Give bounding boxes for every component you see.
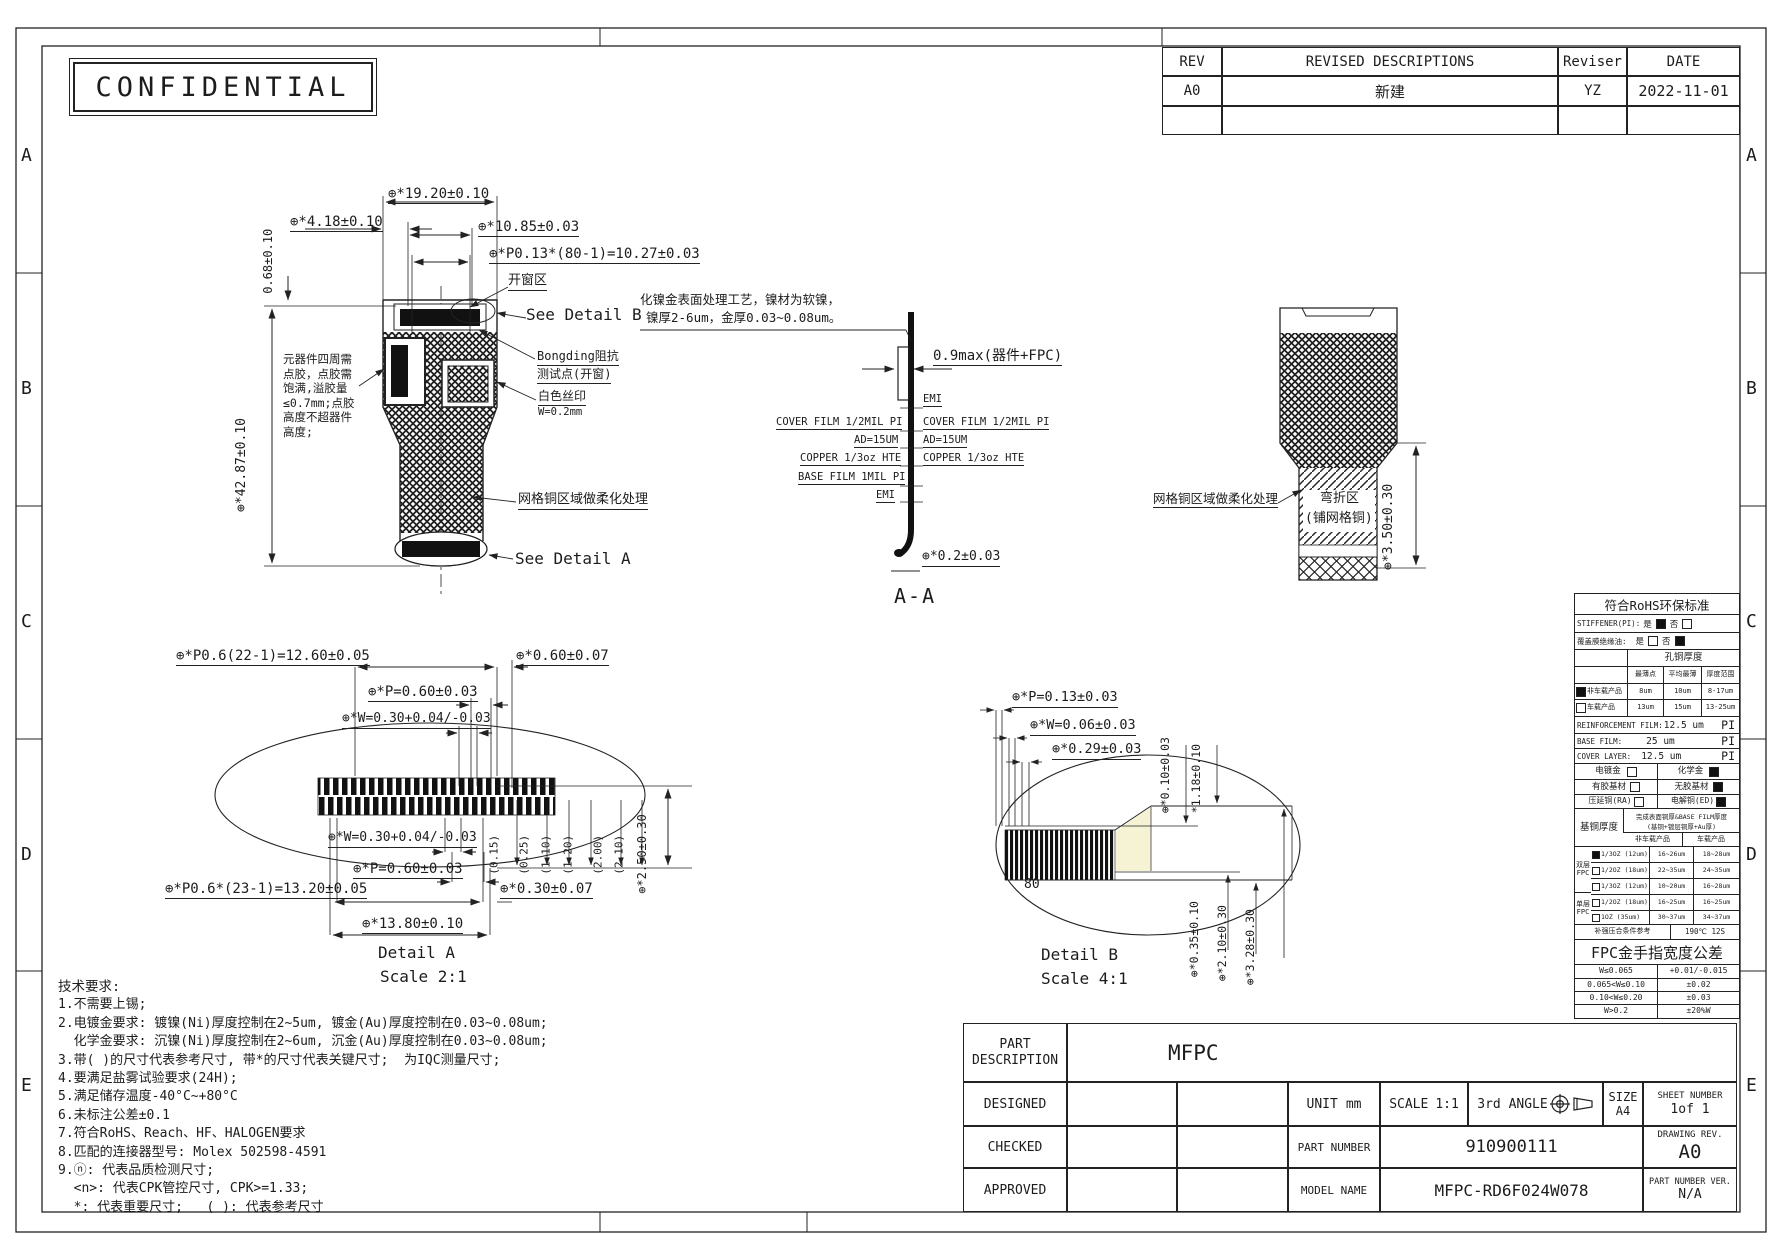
rev-header-rev: REV: [1162, 47, 1222, 76]
glue-note: 元器件四周需 点胶，点胶需 饱满,溢胶量 ≤0.7mm;点胶 高度不超器件 高度…: [283, 352, 354, 440]
emi-layer-bottom: EMI: [876, 489, 895, 503]
dim-pitch-span-23: ⊕*P0.6*(23-1)=13.20±0.05: [165, 881, 367, 899]
checked-date: [1177, 1126, 1288, 1168]
spec-press-row: 补强压合条件参考 190℃ 12S: [1575, 924, 1739, 939]
dim-3-28: ⊕*3.28±0.30: [1244, 909, 1257, 985]
spec-rohs-header: 符合RoHS环保标准: [1575, 594, 1739, 614]
mesh-copper-note: 网格铜区域做柔化处理: [518, 493, 648, 510]
spec-hole-row-non-auto: 非车载产品 8um 10um 8-17um: [1575, 683, 1739, 699]
dim-4-18: ⊕*4.18±0.10: [290, 214, 383, 232]
grid-row-e-left: E: [21, 1075, 32, 1096]
dim-bend-3-50: ⊕*3.50±0.30: [1382, 484, 1397, 570]
checked-value: [1067, 1126, 1177, 1168]
dim-0-60-gap: ⊕*0.60±0.07: [516, 648, 609, 666]
part-number-label: PART NUMBER: [1288, 1126, 1380, 1168]
grid-row-c-right: C: [1746, 611, 1757, 632]
dim-0-10: ⊕*0.10±0.03: [1159, 737, 1172, 813]
notes-title: 技术要求:: [58, 978, 548, 996]
grid-row-a-right: A: [1746, 145, 1757, 166]
part-number-ver-cell: PART NUMBER VER. N/A: [1643, 1168, 1737, 1212]
spec-hole-copper-header: 孔铜厚度: [1575, 649, 1739, 666]
dim-2-50: ⊕*2.50±0.30: [636, 814, 650, 893]
rev-empty-3: [1558, 106, 1627, 135]
projection-cell: 3rd ANGLE: [1468, 1082, 1603, 1126]
dim-0-35: ⊕*0.35±0.10: [1188, 901, 1201, 977]
see-detail-a-label: See Detail A: [515, 550, 631, 568]
ref-dim-2-00: (2.00): [592, 835, 605, 875]
note-line: 9.ⓝ: 代表品质检测尺寸;: [58, 1162, 548, 1180]
spec-hole-cols: 最薄点 平均最薄 厚度范围: [1575, 666, 1739, 683]
designed-date: [1177, 1082, 1288, 1126]
third-angle-projection-icon: [1550, 1093, 1594, 1115]
spec-finger-row-1: W≤0.065 +0.01/-0.015: [1575, 964, 1739, 978]
spec-base-film-row: BASE FILM: 25 um PI: [1575, 733, 1739, 748]
scale-cell: SCALE1:1: [1380, 1082, 1468, 1126]
confidential-stamp: CONFIDENTIAL: [73, 62, 373, 112]
note-line: 7.符合RoHS、Reach、HF、HALOGEN要求: [58, 1125, 548, 1143]
engineering-drawing-page: CONFIDENTIAL A B C D E A B C D E REV REV…: [0, 0, 1778, 1244]
spec-hole-row-auto: 车载产品 13um 15um 13-25um: [1575, 699, 1739, 716]
rev-row-desc: 新建: [1222, 76, 1558, 106]
detail-b-scale: Scale 4:1: [1041, 970, 1128, 988]
adhesive-right: AD=15UM: [923, 434, 967, 448]
technical-notes: 技术要求: 1.不需要上锡; 2.电镀金要求: 镀镍(Ni)厚度控制在2~5um…: [58, 978, 548, 1217]
spec-copper-type-row: 压延铜(RA) 电解铜(ED): [1575, 794, 1739, 808]
note-line: 5.满足储存温度-40°C~+80°C: [58, 1088, 548, 1106]
adhesive-right-checkbox: [1713, 782, 1723, 792]
copper-opt-4-checkbox: [1592, 899, 1600, 907]
rev-row-reviser: YZ: [1558, 76, 1627, 106]
ref-dim-1-10: (1.10): [540, 835, 553, 875]
copper-opt-3-checkbox: [1592, 883, 1600, 891]
bend-zone-label-2: (铺网格铜): [1303, 512, 1375, 527]
model-name-label: MODEL NAME: [1288, 1168, 1380, 1212]
adhesive-left-checkbox: [1630, 782, 1640, 792]
auto-checkbox: [1576, 703, 1586, 713]
copper-layer-right: COPPER 1/3oz HTE: [923, 452, 1024, 466]
non-auto-checkbox: [1576, 687, 1586, 697]
spec-finger-row-3: 0.10<W≤0.20 ±0.03: [1575, 991, 1739, 1004]
ref-dim-0-25: (0.25): [518, 835, 531, 875]
surface-finish-note-1: 化镍金表面处理工艺，镍材为软镍，: [640, 293, 840, 307]
grid-row-d-left: D: [21, 844, 32, 865]
dim-pitch-top: ⊕*P=0.60±0.03: [368, 684, 478, 702]
dim-0-9-max: 0.9max(器件+FPC): [933, 348, 1062, 366]
see-detail-b-label: See Detail B: [526, 306, 642, 324]
note-line: <n>: 代表CPK管控尺寸, CPK>=1.33;: [58, 1180, 548, 1198]
dim-pitch-p013: ⊕*P0.13*(80-1)=10.27±0.03: [489, 246, 700, 264]
section-aa-label: A-A: [894, 585, 936, 608]
spec-table: 符合RoHS环保标准 STIFFENER(PI): 是 否 覆盖膜绝缘油: 是 …: [1574, 593, 1740, 1019]
part-description-label: PART DESCRIPTION: [963, 1023, 1067, 1082]
rev-empty-1: [1162, 106, 1222, 135]
note-line: 6.未标注公差±0.1: [58, 1107, 548, 1125]
dim-0-68: 0.68±0.10: [262, 229, 276, 294]
dim-width-top: ⊕*W=0.30+0.04/-0.03: [342, 712, 491, 729]
copper-ed-checkbox: [1716, 797, 1726, 807]
ref-dim-0-15: (0.15): [488, 835, 501, 875]
copper-opt-5-checkbox: [1592, 914, 1600, 922]
spec-cover-layer-row: COVER LAYER: 12.5 um PI: [1575, 748, 1739, 763]
note-line: 1.不需要上锡;: [58, 996, 548, 1014]
rev-empty-4: [1627, 106, 1740, 135]
cover-film-left: COVER FILM 1/2MIL PI: [776, 416, 902, 430]
part-number-value: 910900111: [1380, 1126, 1643, 1168]
designed-label: DESIGNED: [963, 1082, 1067, 1126]
part-description-value: MFPC: [1067, 1023, 1737, 1082]
detail-a-title: Detail A: [378, 944, 455, 962]
model-name-value: MFPC-RD6F024W078: [1380, 1168, 1643, 1212]
note-line: 2.电镀金要求: 镀镍(Ni)厚度控制在2~5um, 镀金(Au)厚度控制在0.…: [58, 1015, 548, 1033]
bonding-label-2: 测试点(开窗): [537, 368, 611, 384]
plating-left-checkbox: [1627, 767, 1637, 777]
rev-row-date: 2022-11-01: [1627, 76, 1740, 106]
designed-value: [1067, 1082, 1177, 1126]
spec-finger-header: FPC金手指宽度公差: [1575, 939, 1739, 964]
note-line: 4.要满足盐雾试验要求(24H);: [58, 1070, 548, 1088]
sheet-number-cell: SHEET NUMBER 1of 1: [1643, 1082, 1737, 1126]
grid-row-c-left: C: [21, 611, 32, 632]
coverlay-yes-checkbox: [1648, 636, 1658, 646]
note-line: 3.带( )的尺寸代表参考尺寸, 带*的尺寸代表关键尺寸; 为IQC测量尺寸;: [58, 1052, 548, 1070]
spec-base-copper-header: 基铜厚度 完成表面铜厚&BASE FILM厚度 (基铜+镀层铜厚+Au厚) 非车…: [1575, 808, 1739, 846]
spec-stiffener-row: STIFFENER(PI): 是 否: [1575, 614, 1739, 632]
rev-header-reviser: Reviser: [1558, 47, 1627, 76]
adhesive-left: AD=15UM: [854, 434, 898, 448]
grid-row-a-left: A: [21, 145, 32, 166]
note-line: 化学金要求: 沉镍(Ni)厚度控制在2~6um, 沉金(Au)厚度控制在0.03…: [58, 1033, 548, 1051]
bonding-label-1: Bongding阻抗: [537, 350, 619, 366]
copper-ra-checkbox: [1634, 797, 1644, 807]
copper-layer-left: COPPER 1/3oz HTE: [800, 452, 901, 466]
note-line: 8.匹配的连接器型号: Molex 502598-4591: [58, 1144, 548, 1162]
silkscreen-label: 白色丝印: [538, 390, 586, 406]
dim-10-85: ⊕*10.85±0.03: [478, 219, 579, 237]
stiffener-yes-checkbox: [1656, 619, 1666, 629]
detail-b-title: Detail B: [1041, 946, 1118, 964]
open-window-label: 开窗区: [508, 274, 547, 291]
grid-row-d-right: D: [1746, 844, 1757, 865]
dim-finger-width: ⊕*W=0.06±0.03: [1030, 718, 1136, 736]
silkscreen-width: W=0.2mm: [538, 406, 582, 418]
dim-0-30-gap: ⊕*0.30±0.07: [500, 881, 593, 899]
spec-adhesive-row: 有胶基材 无胶基材: [1575, 779, 1739, 794]
drawing-rev-cell: DRAWING REV. A0: [1643, 1126, 1737, 1168]
dim-overall-width: ⊕*19.20±0.10: [388, 186, 489, 204]
plating-right-checkbox: [1709, 767, 1719, 777]
dim-finger-pitch: ⊕*P=0.13±0.03: [1012, 690, 1118, 708]
emi-layer-top: EMI: [923, 393, 942, 407]
checked-label: CHECKED: [963, 1126, 1067, 1168]
unit-cell: UNITmm: [1288, 1082, 1380, 1126]
rev-header-date: DATE: [1627, 47, 1740, 76]
base-film-layer: BASE FILM 1MIL PI: [798, 471, 905, 485]
dim-1-18: *1.18±0.10: [1190, 744, 1203, 813]
approved-date: [1177, 1168, 1288, 1212]
copper-opt-1-checkbox: [1592, 851, 1600, 859]
dim-pitch-span-22: ⊕*P0.6(22-1)=12.60±0.05: [176, 648, 370, 666]
approved-value: [1067, 1168, 1177, 1212]
coverlay-no-checkbox: [1675, 636, 1685, 646]
spec-coverlay-row: 覆盖膜绝缘油: 是 否: [1575, 632, 1739, 649]
cover-film-right: COVER FILM 1/2MIL PI: [923, 416, 1049, 430]
dim-0-29: ⊕*0.29±0.03: [1052, 742, 1141, 760]
dim-overall-length: ⊕*42.87±0.10: [235, 418, 250, 512]
spec-copper-rows-block: 双层 FPC 单层 FPC 1/3OZ (12um) 16~26um 18~28…: [1575, 846, 1739, 924]
grid-row-b-left: B: [21, 378, 32, 399]
approved-label: APPROVED: [963, 1168, 1067, 1212]
spec-reinforcement-row: REINFORCEMENT FILM: 12.5 um PI: [1575, 716, 1739, 733]
rev-empty-2: [1222, 106, 1558, 135]
note-line: *: 代表重要尺寸; ( ): 代表参考尺寸: [58, 1199, 548, 1217]
grid-row-e-right: E: [1746, 1075, 1757, 1096]
spec-finger-row-4: W>0.2 ±20%W: [1575, 1004, 1739, 1018]
rev-header-desc: REVISED DESCRIPTIONS: [1222, 47, 1558, 76]
dim-width-bottom: ⊕*W=0.30+0.04/-0.03: [328, 831, 477, 848]
surface-finish-note-2: 镍厚2-6um，金厚0.03~0.08um。: [646, 311, 841, 325]
dim-thickness-0-2: ⊕*0.2±0.03: [922, 550, 1000, 567]
grid-row-b-right: B: [1746, 378, 1757, 399]
ref-dim-1-20: (1.20): [562, 835, 575, 875]
dim-pitch-bottom: ⊕*P=0.60±0.03: [353, 861, 463, 879]
mesh-copper-note-2: 网格铜区域做柔化处理: [1153, 492, 1278, 508]
rev-row-rev: A0: [1162, 76, 1222, 106]
spec-finger-row-2: 0.065<W≤0.10 ±0.02: [1575, 978, 1739, 991]
ref-dim-2-10: (2.10): [613, 835, 626, 875]
pin-count-label: 80: [1024, 878, 1040, 893]
bend-zone-label-1: 弯折区: [1318, 492, 1361, 507]
dim-2-10-b: ⊕*2.10±0.30: [1216, 905, 1229, 981]
stiffener-no-checkbox: [1682, 619, 1692, 629]
spec-plating-row: 电镀金 化学金: [1575, 763, 1739, 779]
copper-opt-2-checkbox: [1592, 867, 1600, 875]
dim-13-80: ⊕*13.80±0.10: [362, 916, 463, 934]
size-cell: SIZE A4: [1603, 1082, 1643, 1126]
